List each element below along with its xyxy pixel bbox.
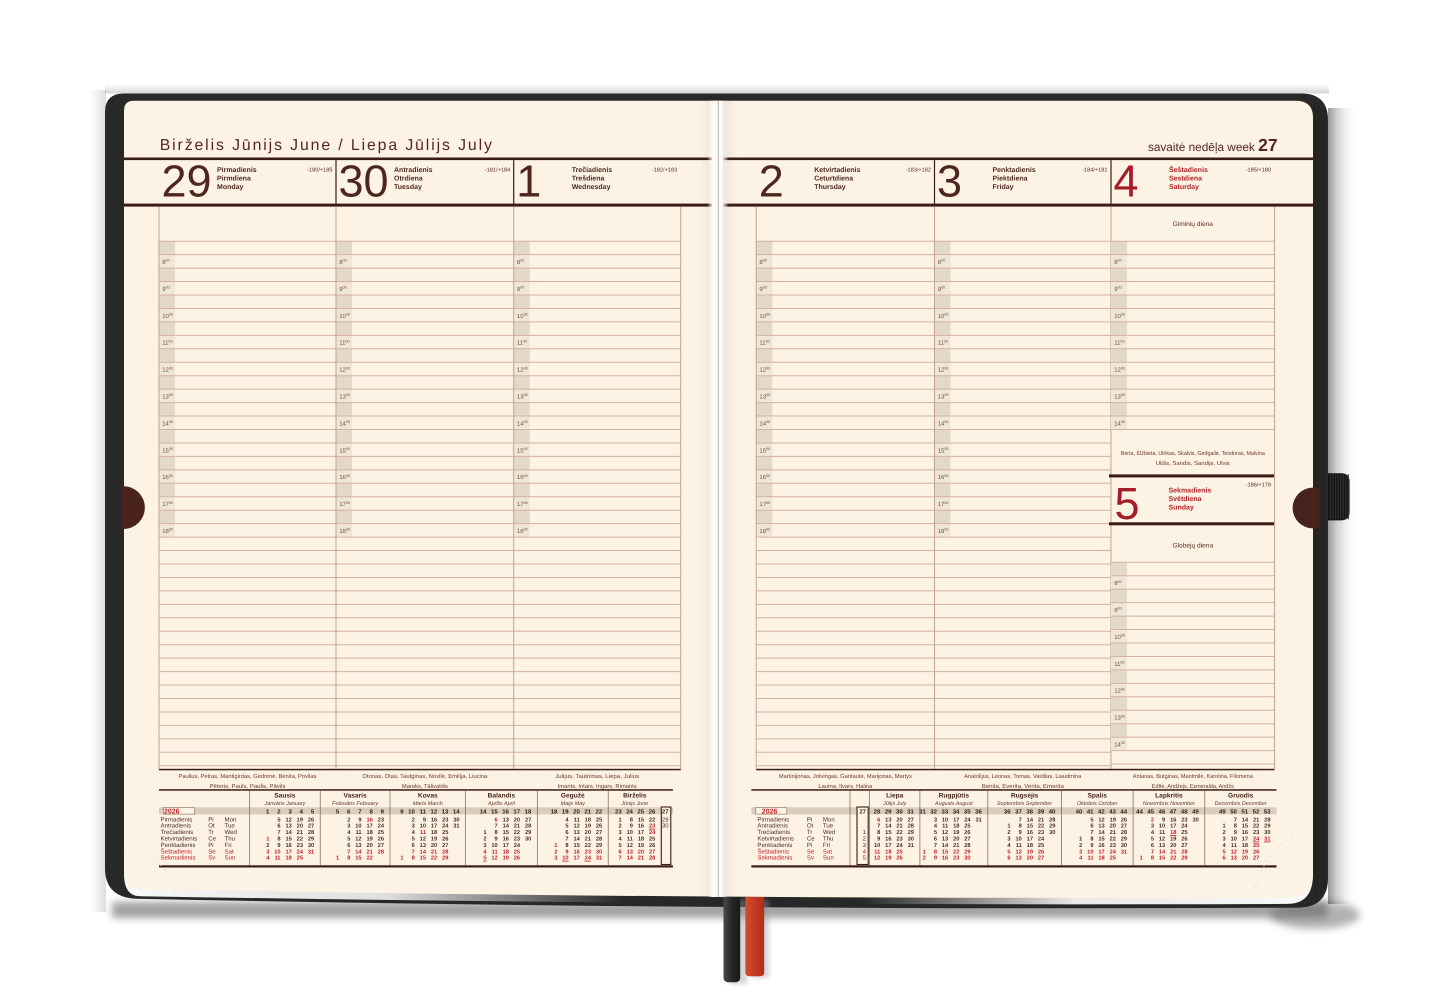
svg-text:Sv: Sv [208, 855, 216, 862]
svg-text:28: 28 [596, 837, 602, 843]
svg-text:23: 23 [1181, 817, 1187, 823]
svg-text:31: 31 [908, 843, 914, 849]
svg-text:24: 24 [514, 843, 521, 849]
svg-text:5: 5 [1115, 478, 1140, 529]
svg-text:13: 13 [442, 808, 449, 815]
svg-text:16: 16 [942, 856, 948, 862]
svg-text:26: 26 [308, 817, 314, 823]
svg-text:1: 1 [400, 856, 403, 862]
svg-text:30: 30 [525, 837, 531, 843]
svg-text:3: 3 [266, 849, 269, 855]
svg-text:Augusts August: Augusts August [934, 801, 973, 807]
svg-text:25: 25 [442, 830, 448, 836]
svg-text:22: 22 [1038, 824, 1044, 830]
svg-text:-185/+180: -185/+180 [1246, 166, 1271, 173]
svg-text:30: 30 [1121, 843, 1127, 849]
svg-text:32: 32 [930, 808, 937, 815]
svg-text:Spalis: Spalis [1087, 793, 1107, 800]
svg-text:1: 1 [619, 817, 622, 823]
svg-text:21: 21 [297, 830, 303, 836]
svg-text:22: 22 [366, 856, 372, 862]
svg-text:Benita, Everita, Verita, Emeri: Benita, Everita, Verita, Emerita [982, 783, 1065, 790]
svg-text:Sestdiena: Sestdiena [1169, 174, 1202, 182]
svg-text:49: 49 [1192, 808, 1199, 815]
svg-text:2: 2 [412, 817, 415, 823]
svg-text:30: 30 [1049, 830, 1055, 836]
svg-text:22: 22 [596, 808, 603, 815]
svg-text:Antanas, Butginas, Mantmilė, K: Antanas, Butginas, Mantmilė, Karolina, F… [1133, 773, 1254, 780]
svg-text:Ceturtdiena: Ceturtdiena [814, 174, 853, 182]
svg-text:8: 8 [1151, 856, 1154, 862]
svg-text:2: 2 [483, 837, 486, 843]
svg-text:22: 22 [1253, 824, 1259, 830]
svg-text:7: 7 [1151, 849, 1154, 855]
svg-text:15: 15 [942, 849, 948, 855]
svg-text:Penktadienis: Penktadienis [993, 166, 1036, 174]
svg-text:2: 2 [1079, 843, 1082, 849]
svg-text:6: 6 [1151, 843, 1154, 849]
svg-text:29: 29 [885, 808, 892, 815]
svg-text:9: 9 [877, 837, 880, 843]
svg-text:19: 19 [562, 808, 569, 815]
svg-text:12: 12 [355, 837, 361, 843]
svg-text:20: 20 [638, 849, 644, 855]
svg-text:26: 26 [1181, 837, 1187, 843]
svg-text:10: 10 [627, 830, 633, 836]
svg-text:21: 21 [896, 824, 902, 830]
svg-text:Septembris September: Septembris September [997, 801, 1052, 807]
svg-text:6: 6 [565, 830, 568, 836]
svg-text:Aprīlis April: Aprīlis April [487, 801, 516, 807]
svg-text:Globėjų diena: Globėjų diena [1172, 543, 1213, 550]
svg-text:27: 27 [662, 808, 669, 815]
svg-text:21: 21 [1170, 849, 1176, 855]
svg-text:Jūnijs June: Jūnijs June [620, 801, 648, 807]
svg-text:12: 12 [1098, 817, 1104, 823]
svg-text:10: 10 [874, 843, 880, 849]
svg-text:7: 7 [1234, 817, 1237, 823]
svg-text:7: 7 [347, 849, 350, 855]
svg-text:27: 27 [596, 830, 602, 836]
svg-text:5: 5 [619, 843, 622, 849]
svg-text:52: 52 [1253, 808, 1260, 815]
svg-text:Sv: Sv [807, 855, 815, 862]
svg-text:21: 21 [514, 824, 520, 830]
svg-text:21: 21 [638, 856, 644, 862]
svg-text:6: 6 [1007, 856, 1010, 862]
svg-text:28: 28 [1049, 817, 1055, 823]
svg-text:25: 25 [1110, 856, 1116, 862]
svg-text:13: 13 [627, 849, 633, 855]
svg-text:25: 25 [964, 824, 970, 830]
svg-text:5: 5 [1151, 837, 1154, 843]
svg-text:7: 7 [412, 849, 415, 855]
svg-text:Pēteris, Pauls, Paulis, Pāvils: Pēteris, Pauls, Paulis, Pāvils [210, 783, 286, 790]
svg-text:13: 13 [942, 837, 948, 843]
svg-text:11: 11 [942, 824, 948, 830]
svg-text:8: 8 [1234, 824, 1237, 830]
svg-text:5: 5 [1223, 849, 1226, 855]
svg-text:2: 2 [923, 856, 926, 862]
svg-text:20: 20 [896, 817, 902, 823]
svg-text:6: 6 [1223, 856, 1226, 862]
svg-text:26: 26 [1121, 817, 1127, 823]
svg-text:Novembris November: Novembris November [1143, 801, 1195, 807]
svg-text:18: 18 [525, 808, 532, 815]
svg-text:9: 9 [495, 837, 498, 843]
svg-text:-183/+182: -183/+182 [906, 166, 931, 173]
svg-text:3: 3 [619, 830, 622, 836]
svg-text:Sun: Sun [225, 855, 236, 862]
svg-text:11: 11 [420, 830, 426, 836]
svg-text:16: 16 [885, 837, 891, 843]
svg-text:Birželis: Birželis [623, 793, 647, 800]
svg-text:3: 3 [347, 824, 350, 830]
svg-text:27: 27 [1181, 843, 1187, 849]
svg-text:2026: 2026 [164, 808, 180, 815]
svg-text:16: 16 [503, 837, 509, 843]
svg-text:12: 12 [431, 808, 438, 815]
svg-text:40: 40 [1076, 808, 1083, 815]
svg-text:24: 24 [1110, 849, 1117, 855]
svg-text:19: 19 [366, 837, 372, 843]
svg-text:14: 14 [1027, 817, 1034, 823]
svg-text:Sekmadienis: Sekmadienis [161, 855, 196, 862]
svg-text:13: 13 [420, 843, 426, 849]
svg-text:15: 15 [1027, 824, 1033, 830]
svg-text:8: 8 [277, 837, 280, 843]
svg-text:14: 14 [627, 856, 634, 862]
svg-text:26: 26 [964, 830, 970, 836]
svg-text:14: 14 [942, 843, 949, 849]
svg-text:51: 51 [1241, 808, 1248, 815]
svg-text:Kovas: Kovas [418, 793, 438, 800]
svg-text:22: 22 [431, 856, 437, 862]
svg-text:14: 14 [1242, 817, 1249, 823]
svg-text:22: 22 [585, 843, 591, 849]
svg-text:9: 9 [630, 824, 633, 830]
svg-text:3: 3 [483, 843, 486, 849]
svg-text:9: 9 [423, 817, 426, 823]
svg-text:18: 18 [953, 824, 959, 830]
svg-text:Otonas, Otas, Tautginas, Novil: Otonas, Otas, Tautginas, Novilė, Emilija… [362, 773, 488, 780]
svg-text:17: 17 [573, 856, 579, 862]
svg-text:13: 13 [1015, 856, 1021, 862]
svg-text:19: 19 [885, 856, 891, 862]
svg-text:Gegužė: Gegužė [561, 793, 585, 800]
svg-text:20: 20 [297, 824, 303, 830]
svg-text:29: 29 [525, 830, 531, 836]
svg-text:14: 14 [355, 849, 362, 855]
svg-text:11: 11 [420, 808, 427, 815]
svg-text:14: 14 [573, 837, 580, 843]
svg-text:27: 27 [908, 817, 914, 823]
svg-text:34: 34 [953, 808, 960, 815]
svg-text:20: 20 [1242, 856, 1248, 862]
svg-text:Friday: Friday [993, 183, 1014, 191]
svg-text:29: 29 [1264, 824, 1270, 830]
svg-text:19: 19 [431, 837, 437, 843]
svg-text:27: 27 [1253, 856, 1259, 862]
svg-text:8: 8 [565, 843, 568, 849]
svg-text:31: 31 [1121, 849, 1127, 855]
svg-text:27: 27 [525, 817, 531, 823]
svg-text:-184/+181: -184/+181 [1082, 166, 1107, 173]
svg-text:5: 5 [565, 824, 568, 830]
svg-text:7: 7 [277, 830, 280, 836]
svg-text:16: 16 [638, 824, 644, 830]
svg-text:27: 27 [1038, 856, 1044, 862]
svg-text:1: 1 [1079, 837, 1082, 843]
svg-text:30: 30 [339, 155, 389, 206]
svg-text:26: 26 [1038, 849, 1044, 855]
svg-text:16: 16 [285, 843, 291, 849]
svg-text:14: 14 [420, 849, 427, 855]
svg-text:1: 1 [1007, 824, 1010, 830]
svg-text:12: 12 [491, 856, 497, 862]
svg-text:8: 8 [495, 830, 498, 836]
svg-text:5: 5 [934, 830, 937, 836]
svg-text:3: 3 [937, 155, 962, 206]
svg-text:Giminių diena: Giminių diena [1173, 221, 1214, 228]
svg-text:31: 31 [919, 808, 926, 815]
svg-text:28: 28 [908, 824, 914, 830]
svg-text:24: 24 [1181, 824, 1188, 830]
svg-text:11: 11 [1016, 843, 1022, 849]
svg-text:23: 23 [953, 856, 959, 862]
svg-text:12: 12 [1015, 849, 1021, 855]
svg-text:6: 6 [412, 843, 415, 849]
svg-text:15: 15 [355, 856, 361, 862]
svg-text:14: 14 [1159, 849, 1166, 855]
svg-text:Janvāris January: Janvāris January [264, 801, 306, 807]
svg-text:2: 2 [619, 824, 622, 830]
svg-text:19: 19 [585, 824, 591, 830]
svg-text:30: 30 [308, 843, 314, 849]
svg-text:11: 11 [275, 856, 281, 862]
svg-text:5: 5 [412, 837, 415, 843]
svg-text:28: 28 [964, 843, 970, 849]
svg-text:12: 12 [942, 830, 948, 836]
svg-text:18: 18 [551, 808, 558, 815]
svg-text:16: 16 [431, 817, 437, 823]
svg-text:23: 23 [297, 843, 303, 849]
svg-text:15: 15 [573, 843, 579, 849]
svg-text:16: 16 [1242, 830, 1248, 836]
svg-text:25: 25 [1038, 843, 1044, 849]
svg-text:15: 15 [1159, 856, 1165, 862]
svg-text:17: 17 [431, 824, 437, 830]
svg-text:14: 14 [885, 824, 892, 830]
svg-text:8: 8 [412, 856, 415, 862]
svg-text:21: 21 [584, 808, 591, 815]
svg-text:10: 10 [274, 849, 280, 855]
svg-text:6: 6 [277, 824, 280, 830]
svg-text:12: 12 [1231, 849, 1237, 855]
svg-text:17: 17 [1098, 849, 1104, 855]
svg-text:13: 13 [1098, 824, 1104, 830]
svg-text:29: 29 [908, 830, 914, 836]
svg-text:24: 24 [964, 817, 971, 823]
svg-text:25: 25 [514, 849, 520, 855]
svg-text:Oktobris October: Oktobris October [1077, 801, 1118, 807]
svg-text:27: 27 [308, 824, 314, 830]
svg-text:21: 21 [431, 849, 437, 855]
svg-text:22: 22 [896, 830, 902, 836]
svg-text:27: 27 [859, 808, 866, 815]
svg-text:23: 23 [442, 817, 448, 823]
svg-text:8: 8 [347, 856, 350, 862]
svg-text:23: 23 [1038, 830, 1044, 836]
svg-text:19: 19 [1110, 817, 1116, 823]
svg-text:28: 28 [442, 849, 448, 855]
svg-text:26: 26 [649, 843, 655, 849]
svg-text:6: 6 [1090, 824, 1093, 830]
svg-text:Pirmdiena: Pirmdiena [217, 174, 251, 182]
svg-text:Maijs May: Maijs May [561, 801, 586, 807]
svg-text:15: 15 [420, 856, 426, 862]
svg-text:3: 3 [412, 824, 415, 830]
svg-text:Julijus, Tautrimas, Liepa, Jul: Julijus, Tautrimas, Liepa, Julius [555, 773, 639, 780]
svg-text:7: 7 [877, 824, 880, 830]
svg-text:5: 5 [1090, 817, 1093, 823]
svg-text:31: 31 [308, 849, 314, 855]
svg-text:14: 14 [453, 808, 460, 815]
svg-text:13: 13 [1159, 843, 1165, 849]
svg-text:6: 6 [619, 849, 622, 855]
svg-text:3: 3 [1079, 849, 1082, 855]
svg-text:15: 15 [638, 817, 644, 823]
svg-text:9: 9 [1090, 843, 1093, 849]
svg-text:8: 8 [630, 817, 633, 823]
svg-text:9: 9 [1019, 830, 1022, 836]
svg-text:11: 11 [1159, 830, 1165, 836]
svg-text:26: 26 [1253, 849, 1259, 855]
svg-text:11: 11 [356, 830, 362, 836]
svg-text:12: 12 [420, 837, 426, 843]
svg-text:18: 18 [366, 830, 372, 836]
svg-text:7: 7 [1090, 830, 1093, 836]
svg-text:30: 30 [453, 817, 459, 823]
svg-text:9: 9 [1162, 817, 1165, 823]
svg-text:8: 8 [877, 830, 880, 836]
svg-text:Decembris December: Decembris December [1215, 801, 1267, 807]
svg-text:1: 1 [516, 155, 541, 206]
svg-text:18: 18 [1027, 843, 1033, 849]
svg-text:13: 13 [285, 824, 291, 830]
svg-text:15: 15 [491, 808, 498, 815]
svg-text:30: 30 [896, 808, 903, 815]
svg-text:19: 19 [297, 817, 303, 823]
svg-text:24: 24 [649, 830, 656, 836]
svg-text:28: 28 [1264, 817, 1270, 823]
svg-text:6: 6 [347, 843, 350, 849]
svg-text:Sausis: Sausis [274, 793, 296, 800]
svg-text:Sun: Sun [823, 855, 834, 862]
svg-text:Svētdiena: Svētdiena [1169, 495, 1202, 503]
svg-text:6: 6 [877, 817, 880, 823]
svg-text:13: 13 [885, 817, 891, 823]
svg-text:31: 31 [907, 808, 914, 815]
svg-text:21: 21 [953, 843, 959, 849]
svg-text:9: 9 [358, 817, 361, 823]
svg-text:16: 16 [502, 808, 509, 815]
svg-text:19: 19 [1242, 849, 1248, 855]
svg-text:2: 2 [554, 849, 557, 855]
svg-text:2: 2 [1151, 817, 1154, 823]
svg-text:Martinijonas, Jotvingas, Ganta: Martinijonas, Jotvingas, Gantautė, Marij… [779, 773, 912, 780]
svg-text:Wednesday: Wednesday [572, 183, 611, 191]
svg-text:12: 12 [573, 824, 579, 830]
svg-text:36: 36 [975, 808, 982, 815]
svg-text:15: 15 [285, 837, 291, 843]
svg-text:5: 5 [277, 817, 280, 823]
svg-text:2: 2 [1223, 830, 1226, 836]
svg-text:25: 25 [1181, 830, 1187, 836]
svg-text:14: 14 [480, 808, 487, 815]
svg-text:21: 21 [1038, 817, 1044, 823]
svg-text:7: 7 [619, 856, 622, 862]
svg-text:47: 47 [1170, 808, 1177, 815]
svg-text:9: 9 [1234, 830, 1237, 836]
svg-text:16: 16 [1027, 830, 1033, 836]
svg-text:26: 26 [649, 808, 656, 815]
svg-text:31: 31 [975, 817, 981, 823]
svg-text:29: 29 [1121, 837, 1127, 843]
svg-text:2: 2 [266, 843, 269, 849]
svg-text:28: 28 [378, 849, 384, 855]
svg-text:Tuesday: Tuesday [394, 183, 422, 191]
svg-text:Sunday: Sunday [1169, 504, 1194, 512]
svg-text:29: 29 [662, 816, 669, 823]
svg-text:15: 15 [1242, 824, 1248, 830]
svg-text:53: 53 [1264, 808, 1271, 815]
svg-text:25: 25 [378, 830, 384, 836]
svg-text:23: 23 [896, 837, 902, 843]
svg-text:-180/+185: -180/+185 [307, 166, 332, 173]
svg-text:25: 25 [896, 849, 902, 855]
svg-text:40: 40 [1049, 808, 1056, 815]
svg-text:30: 30 [596, 849, 602, 855]
svg-text:15: 15 [1098, 837, 1104, 843]
svg-text:28: 28 [874, 808, 881, 815]
svg-text:30: 30 [662, 823, 669, 830]
svg-text:9: 9 [565, 849, 568, 855]
svg-text:Gruodis: Gruodis [1228, 793, 1254, 800]
svg-text:30: 30 [964, 856, 970, 862]
svg-text:12: 12 [1159, 837, 1165, 843]
svg-text:24: 24 [1038, 837, 1045, 843]
svg-text:13: 13 [1231, 856, 1237, 862]
svg-text:10: 10 [1231, 837, 1237, 843]
svg-text:15: 15 [885, 830, 891, 836]
svg-text:21: 21 [585, 837, 591, 843]
svg-text:5: 5 [347, 837, 350, 843]
svg-text:2: 2 [759, 155, 784, 206]
svg-text:Thursday: Thursday [814, 183, 846, 191]
svg-text:23: 23 [615, 808, 622, 815]
svg-text:22: 22 [514, 830, 520, 836]
svg-text:18: 18 [431, 830, 437, 836]
svg-text:19: 19 [1027, 849, 1033, 855]
svg-text:3: 3 [1007, 837, 1010, 843]
svg-text:-182/+183: -182/+183 [652, 166, 677, 173]
svg-text:Rugpjūtis: Rugpjūtis [939, 793, 970, 800]
svg-text:17: 17 [513, 808, 520, 815]
svg-text:24: 24 [442, 824, 449, 830]
svg-text:14: 14 [503, 824, 510, 830]
svg-text:9: 9 [277, 843, 280, 849]
